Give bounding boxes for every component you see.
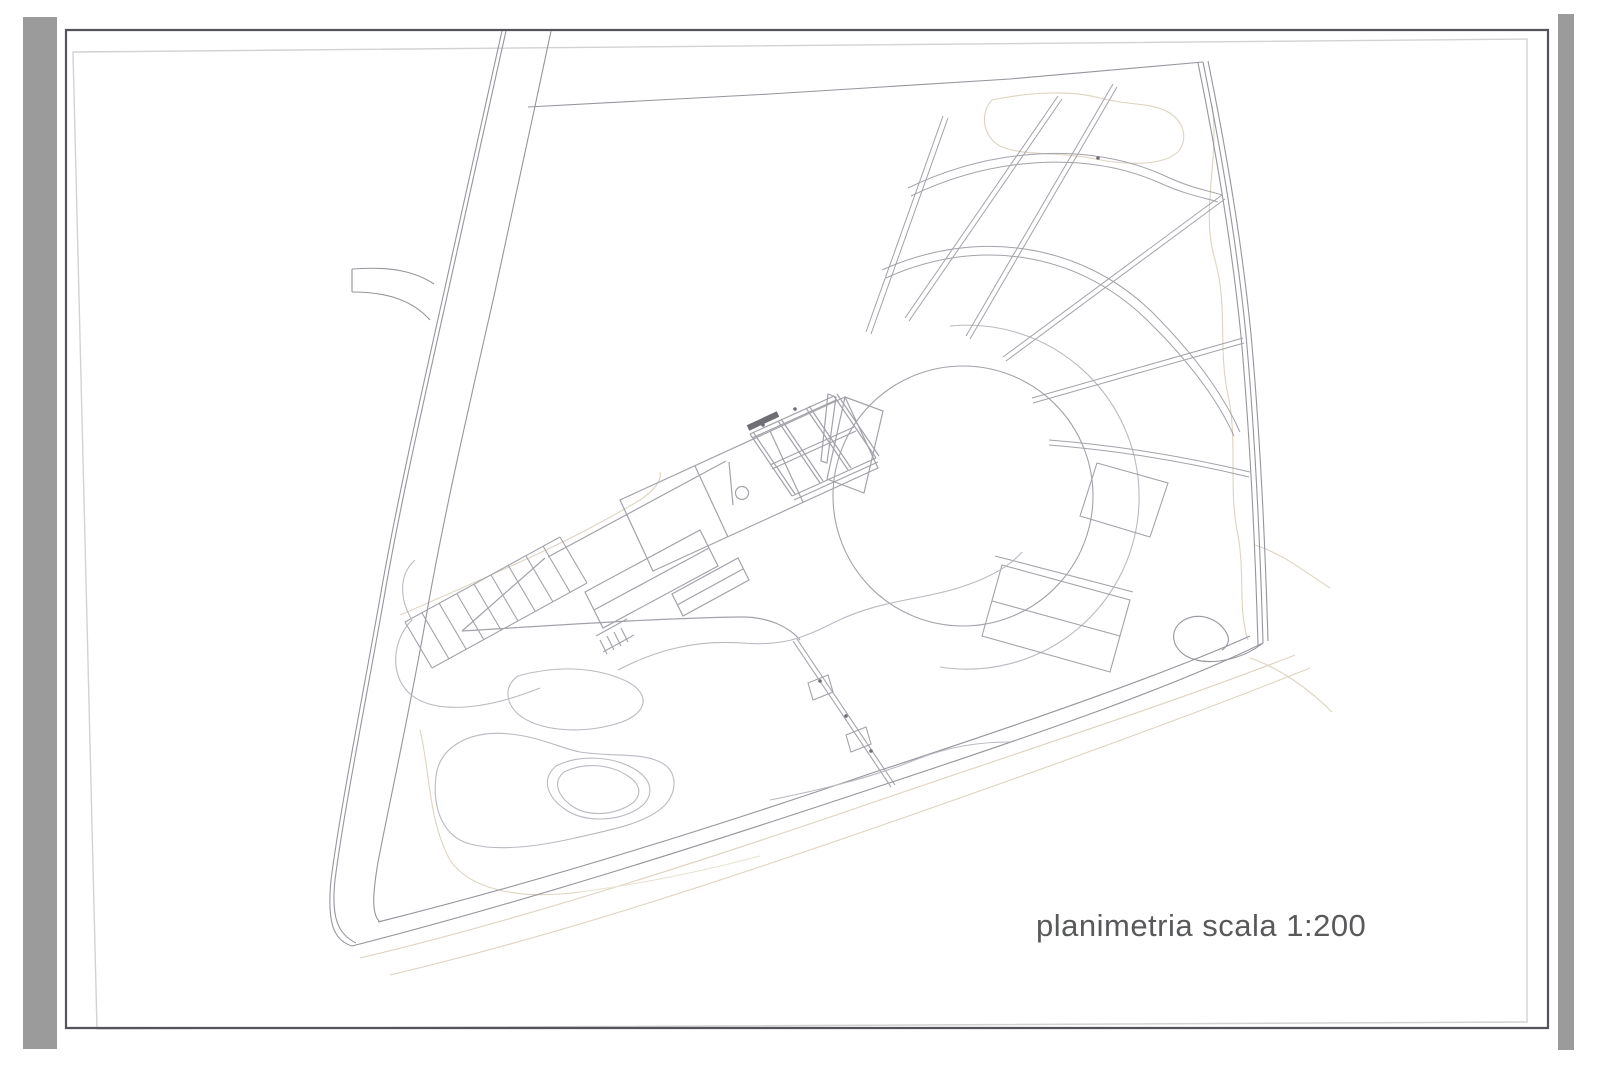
- plaza-circle: [833, 325, 1139, 669]
- pergola-grid: [748, 394, 879, 500]
- scale-label: planimetria scala 1:200: [1036, 908, 1416, 944]
- drawing-viewer: planimetria scala 1:200: [0, 0, 1600, 1066]
- radial-path-grid: [866, 84, 1250, 477]
- drawing-frame: [66, 30, 1548, 1028]
- site-roads: [330, 31, 1268, 946]
- pier-walkway: [793, 639, 895, 787]
- contour-lines: [360, 93, 1332, 975]
- paper-sheet-edge: [73, 39, 1527, 1029]
- landscape-shapes: [396, 552, 1022, 848]
- building-complex: [462, 394, 883, 640]
- garden-plots: [982, 463, 1168, 672]
- site-plan-drawing: [0, 0, 1600, 1066]
- ramp-stairs: [405, 537, 634, 668]
